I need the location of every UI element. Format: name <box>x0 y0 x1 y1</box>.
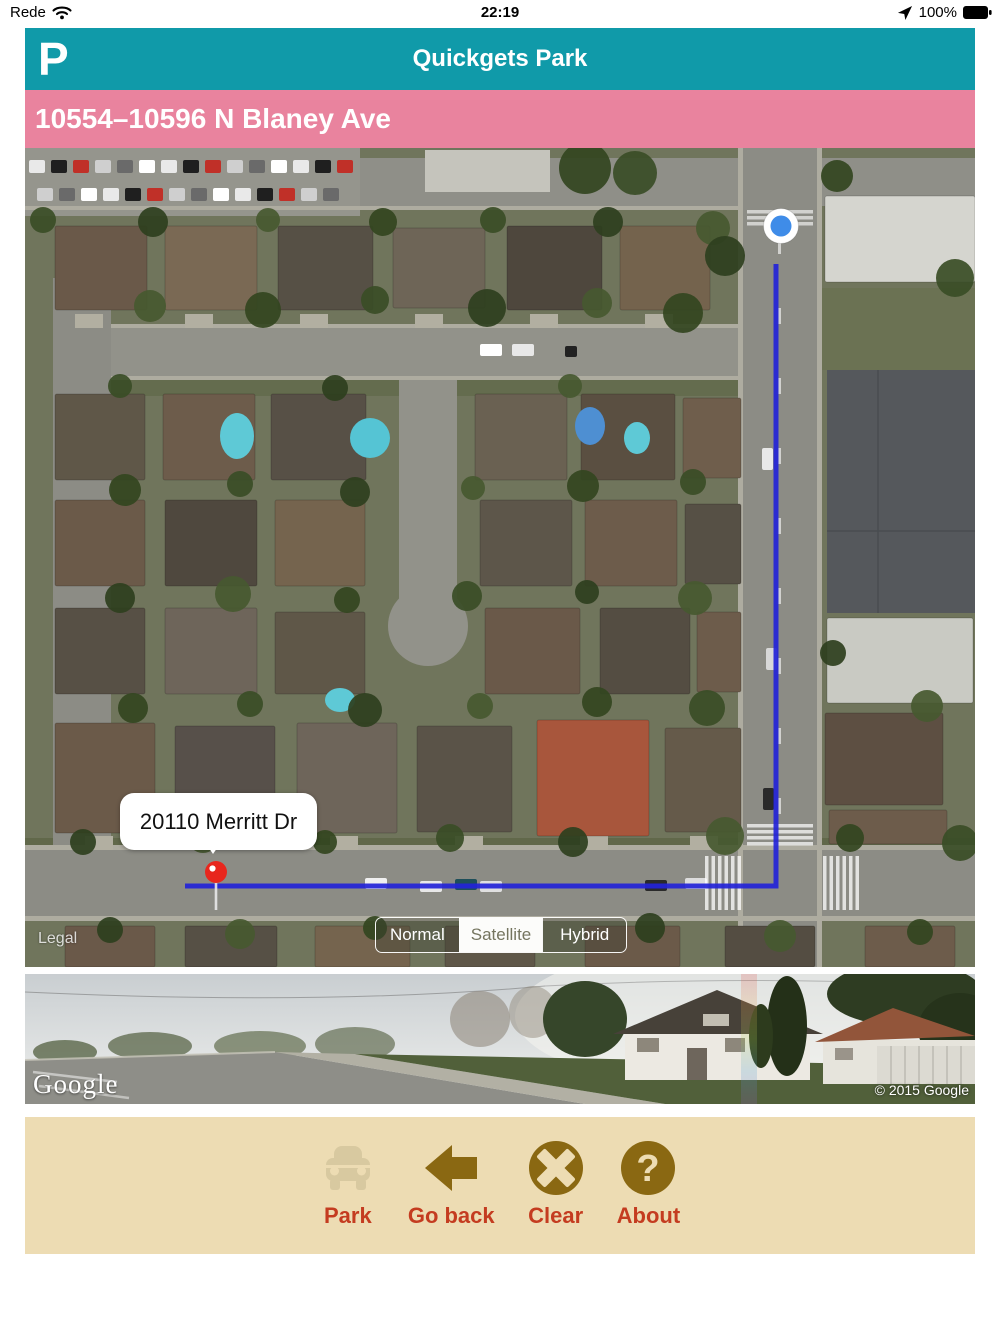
legal-link[interactable]: Legal <box>38 930 77 948</box>
current-location-icon <box>764 209 799 244</box>
svg-text:?: ? <box>637 1148 660 1190</box>
address-bar: 10554–10596 N Blaney Ave <box>25 90 975 148</box>
location-arrow-icon <box>897 5 913 21</box>
callout-text: 20110 Merritt Dr <box>140 809 297 835</box>
back-arrow-icon <box>425 1139 477 1197</box>
street-view-copyright: © 2015 Google <box>875 1082 969 1098</box>
destination-callout[interactable]: 20110 Merritt Dr <box>120 793 317 850</box>
clear-button[interactable]: Clear <box>527 1139 585 1229</box>
street-view-art <box>25 974 975 1104</box>
bottom-toolbar: Park Go back Clear <box>25 1117 975 1254</box>
app-header: P Quickgets Park <box>25 28 975 90</box>
battery-percent: 100% <box>919 4 957 21</box>
clear-x-icon <box>527 1139 585 1197</box>
go-back-label: Go back <box>408 1203 495 1229</box>
map-type-normal[interactable]: Normal <box>376 918 459 952</box>
map-view[interactable]: 20110 Merritt Dr Normal Satellite Hybrid… <box>25 148 975 967</box>
google-watermark: Google <box>33 1069 118 1100</box>
map-type-satellite-label: Satellite <box>471 925 531 945</box>
question-mark-icon: ? <box>619 1139 677 1197</box>
park-label: Park <box>324 1203 372 1229</box>
about-label: About <box>617 1203 681 1229</box>
map-type-hybrid-label: Hybrid <box>560 925 609 945</box>
app-screen: Rede 22:19 100% P Quickgets Park 10554–1… <box>0 0 1000 1333</box>
battery-icon <box>963 6 992 19</box>
go-back-button[interactable]: Go back <box>408 1139 495 1229</box>
street-view-panorama[interactable]: Google © 2015 Google <box>25 974 975 1104</box>
map-type-satellite[interactable]: Satellite <box>459 918 543 952</box>
clear-label: Clear <box>528 1203 583 1229</box>
clock: 22:19 <box>0 4 1000 21</box>
address-text: 10554–10596 N Blaney Ave <box>35 90 391 148</box>
page-title: Quickgets Park <box>25 28 975 90</box>
status-bar: Rede 22:19 100% <box>0 0 1000 28</box>
missing-tile-overlay <box>827 370 975 613</box>
about-button[interactable]: ? About <box>617 1139 681 1229</box>
map-type-segmented-control: Normal Satellite Hybrid <box>375 917 627 953</box>
map-type-hybrid[interactable]: Hybrid <box>542 918 626 952</box>
park-button[interactable]: Park <box>320 1139 376 1229</box>
car-icon <box>320 1139 376 1197</box>
map-type-normal-label: Normal <box>390 925 445 945</box>
